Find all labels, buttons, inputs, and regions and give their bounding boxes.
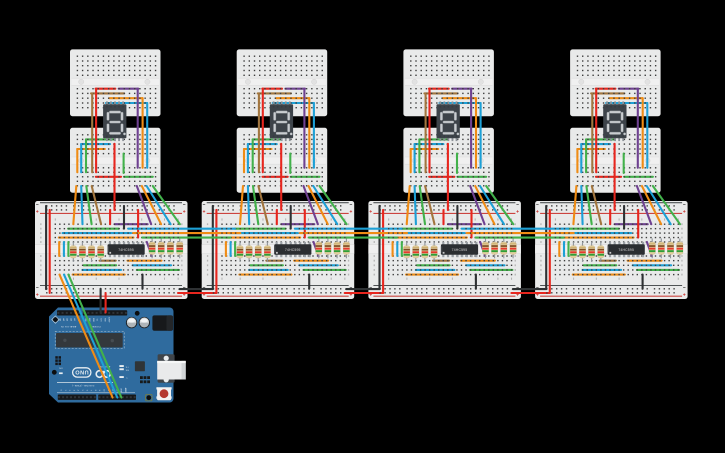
svg-text:IOREF: IOREF bbox=[107, 317, 109, 322]
svg-text:7: 7 bbox=[90, 390, 92, 391]
svg-text:3: 3 bbox=[72, 390, 74, 391]
svg-text:10: 10 bbox=[103, 389, 105, 391]
svg-text:RST: RST bbox=[104, 318, 106, 321]
svg-text:TX: TX bbox=[125, 365, 129, 367]
svg-text:RX: RX bbox=[125, 369, 129, 371]
svg-text:ON: ON bbox=[59, 367, 63, 369]
svg-text:5: 5 bbox=[81, 390, 83, 391]
svg-text:9: 9 bbox=[98, 390, 100, 391]
svg-text:DIGITAL (PWM~): DIGITAL (PWM~) bbox=[72, 384, 95, 387]
svg-text:4: 4 bbox=[77, 390, 79, 391]
svg-text:2: 2 bbox=[68, 390, 70, 391]
svg-text:3V3: 3V3 bbox=[100, 318, 102, 321]
svg-text:6: 6 bbox=[85, 390, 87, 391]
svg-text:1: 1 bbox=[64, 390, 66, 391]
svg-text:L: L bbox=[126, 376, 127, 378]
svg-text:UNO: UNO bbox=[75, 369, 89, 375]
svg-text:0: 0 bbox=[60, 390, 62, 391]
svg-text:ANALOG IN: ANALOG IN bbox=[61, 325, 77, 328]
svg-text:8: 8 bbox=[94, 390, 96, 391]
